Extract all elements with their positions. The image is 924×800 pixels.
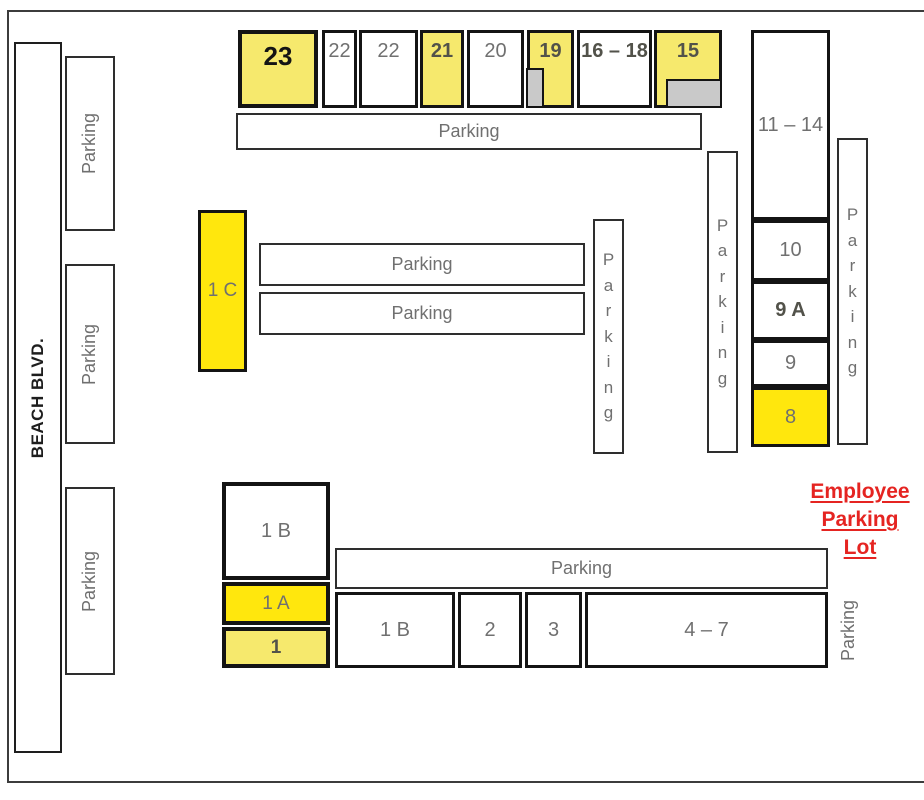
parking-vertical-right-letter: k bbox=[718, 289, 727, 315]
parking-vertical-right-letter: a bbox=[718, 238, 727, 264]
building-16-18-label: 16 – 18 bbox=[581, 40, 648, 63]
building-1c: 1 C bbox=[198, 210, 247, 372]
parking-vertical-mid-letter: n bbox=[604, 375, 613, 401]
parking-vertical-right-letter: P bbox=[717, 213, 728, 239]
building-19-entrance bbox=[526, 68, 544, 108]
employee-parking-lot-note: Employee Parking Lot bbox=[796, 478, 924, 562]
building-15-entrance bbox=[666, 79, 722, 108]
building-8: 8 bbox=[751, 387, 830, 447]
building-2-label: 2 bbox=[484, 619, 495, 642]
building-2: 2 bbox=[458, 592, 522, 668]
building-1: 1 bbox=[222, 627, 330, 668]
parking-vertical-far-right-letter: k bbox=[848, 279, 857, 305]
parking-vertical-far-right-letter: g bbox=[848, 355, 857, 381]
parking-bottom-right-label: Parking bbox=[839, 599, 860, 660]
building-1c-label: 1 C bbox=[208, 280, 238, 302]
beach-blvd-street: BEACH BLVD. bbox=[14, 42, 62, 753]
building-21: 21 bbox=[420, 30, 464, 108]
parking-vertical-mid-letter: P bbox=[603, 247, 614, 273]
parking-vertical-mid: Parking bbox=[593, 219, 624, 454]
building-4-7: 4 – 7 bbox=[585, 592, 828, 668]
parking-mid-strip-2: Parking bbox=[259, 292, 585, 335]
building-11-14-label: 11 – 14 bbox=[758, 114, 823, 137]
parking-vertical-far-right-letter: n bbox=[848, 330, 857, 356]
parking-vertical-right: Parking bbox=[707, 151, 738, 453]
building-3: 3 bbox=[525, 592, 582, 668]
site-map: BEACH BLVD. 23222221201916 – 181511 – 14… bbox=[0, 0, 924, 800]
parking-left-3: Parking bbox=[65, 487, 115, 675]
building-9a-label: 9 A bbox=[775, 299, 805, 322]
beach-blvd-label: BEACH BLVD. bbox=[28, 337, 48, 457]
employee-note-line-1: Employee bbox=[796, 478, 924, 506]
parking-bottom-strip: Parking bbox=[335, 548, 828, 589]
parking-vertical-right-letter: n bbox=[718, 340, 727, 366]
parking-vertical-far-right-letter: r bbox=[850, 253, 856, 279]
building-1b-upper: 1 B bbox=[222, 482, 330, 580]
building-22-b: 22 bbox=[359, 30, 418, 108]
building-19-label: 19 bbox=[539, 40, 561, 63]
parking-vertical-far-right-letter: a bbox=[848, 228, 857, 254]
building-1b-upper-label: 1 B bbox=[261, 520, 291, 543]
parking-vertical-right-letter: g bbox=[718, 366, 727, 392]
building-21-label: 21 bbox=[431, 40, 453, 63]
building-22-b-label: 22 bbox=[377, 40, 399, 63]
parking-vertical-right-letter: i bbox=[721, 315, 725, 341]
building-10: 10 bbox=[751, 220, 830, 281]
parking-vertical-far-right: Parking bbox=[837, 138, 868, 445]
building-1-label: 1 bbox=[271, 637, 282, 659]
employee-note-line-3: Lot bbox=[796, 534, 924, 562]
building-22-a: 22 bbox=[322, 30, 357, 108]
parking-vertical-mid-letter: a bbox=[604, 273, 613, 299]
parking-vertical-right-letter: r bbox=[720, 264, 726, 290]
building-10-label: 10 bbox=[779, 239, 801, 262]
parking-left-1-label: Parking bbox=[80, 113, 101, 174]
building-9: 9 bbox=[751, 340, 830, 387]
building-23-label: 23 bbox=[264, 41, 293, 72]
building-1a: 1 A bbox=[222, 582, 330, 625]
parking-vertical-mid-letter: i bbox=[607, 349, 611, 375]
employee-note-line-2: Parking bbox=[796, 506, 924, 534]
parking-left-2: Parking bbox=[65, 264, 115, 444]
building-1b-lower: 1 B bbox=[335, 592, 455, 668]
building-9a: 9 A bbox=[751, 281, 830, 340]
parking-mid-strip-1: Parking bbox=[259, 243, 585, 286]
parking-mid-strip-2-label: Parking bbox=[391, 303, 452, 324]
building-3-label: 3 bbox=[548, 619, 559, 642]
parking-left-2-label: Parking bbox=[80, 323, 101, 384]
building-23: 23 bbox=[238, 30, 318, 108]
parking-vertical-mid-letter: k bbox=[604, 324, 613, 350]
parking-left-1: Parking bbox=[65, 56, 115, 231]
parking-vertical-mid-letter: r bbox=[606, 298, 612, 324]
building-20: 20 bbox=[467, 30, 524, 108]
building-15-label: 15 bbox=[677, 40, 699, 63]
parking-vertical-far-right-letter: i bbox=[851, 304, 855, 330]
building-8-label: 8 bbox=[785, 406, 796, 429]
parking-vertical-mid-letter: g bbox=[604, 400, 613, 426]
building-4-7-label: 4 – 7 bbox=[684, 619, 728, 642]
building-11-14: 11 – 14 bbox=[751, 30, 830, 220]
parking-mid-strip-1-label: Parking bbox=[391, 254, 452, 275]
parking-left-3-label: Parking bbox=[80, 550, 101, 611]
building-22-a-label: 22 bbox=[328, 40, 350, 63]
building-1b-lower-label: 1 B bbox=[380, 619, 410, 642]
parking-top-strip-label: Parking bbox=[438, 121, 499, 142]
parking-bottom-right: Parking bbox=[833, 592, 865, 668]
building-9-label: 9 bbox=[785, 352, 796, 375]
parking-top-strip: Parking bbox=[236, 113, 702, 150]
building-1a-label: 1 A bbox=[262, 593, 289, 615]
building-16-18: 16 – 18 bbox=[577, 30, 652, 108]
parking-bottom-strip-label: Parking bbox=[551, 558, 612, 579]
parking-vertical-far-right-letter: P bbox=[847, 202, 858, 228]
building-20-label: 20 bbox=[484, 40, 506, 63]
